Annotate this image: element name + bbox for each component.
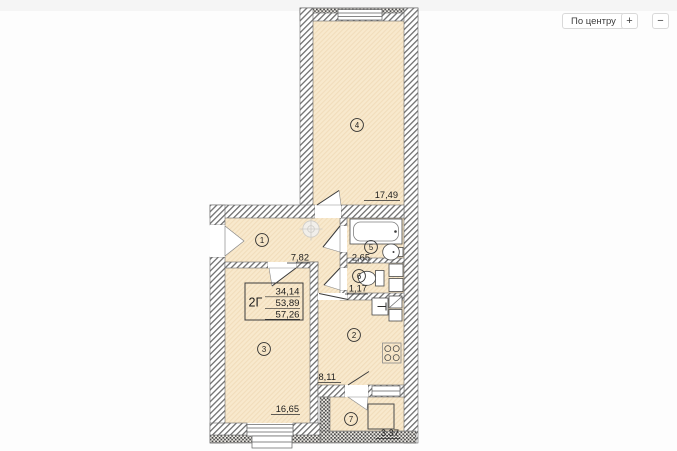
svg-text:3: 3 xyxy=(262,345,266,354)
bathtub xyxy=(350,219,402,244)
room-area-5: 2,65 xyxy=(348,253,371,264)
floor-plan-canvas[interactable]: 1 2 3 4 5 6 7 xyxy=(208,5,420,451)
center-view-button[interactable]: По центру xyxy=(562,13,625,29)
svg-text:1: 1 xyxy=(260,236,264,245)
zoom-in-button[interactable]: + xyxy=(621,13,638,29)
kitchen-sink xyxy=(372,298,388,315)
window-room4 xyxy=(338,10,382,21)
apartment-area-1: 34,14 xyxy=(275,287,300,298)
svg-text:2: 2 xyxy=(352,331,356,340)
apartment-type: 2Г xyxy=(249,296,263,310)
window-lower-balcony xyxy=(252,436,292,448)
window-kitchen-balcony xyxy=(372,386,400,396)
svg-text:16,65: 16,65 xyxy=(276,404,299,414)
svg-text:3,37: 3,37 xyxy=(381,428,399,438)
window-room3 xyxy=(247,425,293,437)
room-area-3: 16,65 xyxy=(271,404,300,415)
zoom-out-button[interactable]: − xyxy=(652,13,669,29)
svg-text:5: 5 xyxy=(369,243,374,252)
door-kitchen xyxy=(318,293,348,300)
svg-text:7: 7 xyxy=(349,415,353,424)
svg-text:4: 4 xyxy=(355,121,360,130)
svg-text:6: 6 xyxy=(357,272,361,281)
room-area-1: 7,82 xyxy=(287,253,310,264)
svg-text:1,17: 1,17 xyxy=(349,284,367,294)
apartment-area-3: 57,26 xyxy=(275,310,299,321)
svg-text:17,49: 17,49 xyxy=(375,190,398,200)
plan-viewer: По центру + − xyxy=(0,0,677,451)
apartment-area-2: 53,89 xyxy=(275,298,299,309)
room-area-6: 1,17 xyxy=(345,284,368,295)
svg-text:8,11: 8,11 xyxy=(319,372,336,382)
svg-text:7,82: 7,82 xyxy=(291,253,309,263)
svg-text:2,65: 2,65 xyxy=(352,253,370,263)
stove xyxy=(383,343,402,363)
